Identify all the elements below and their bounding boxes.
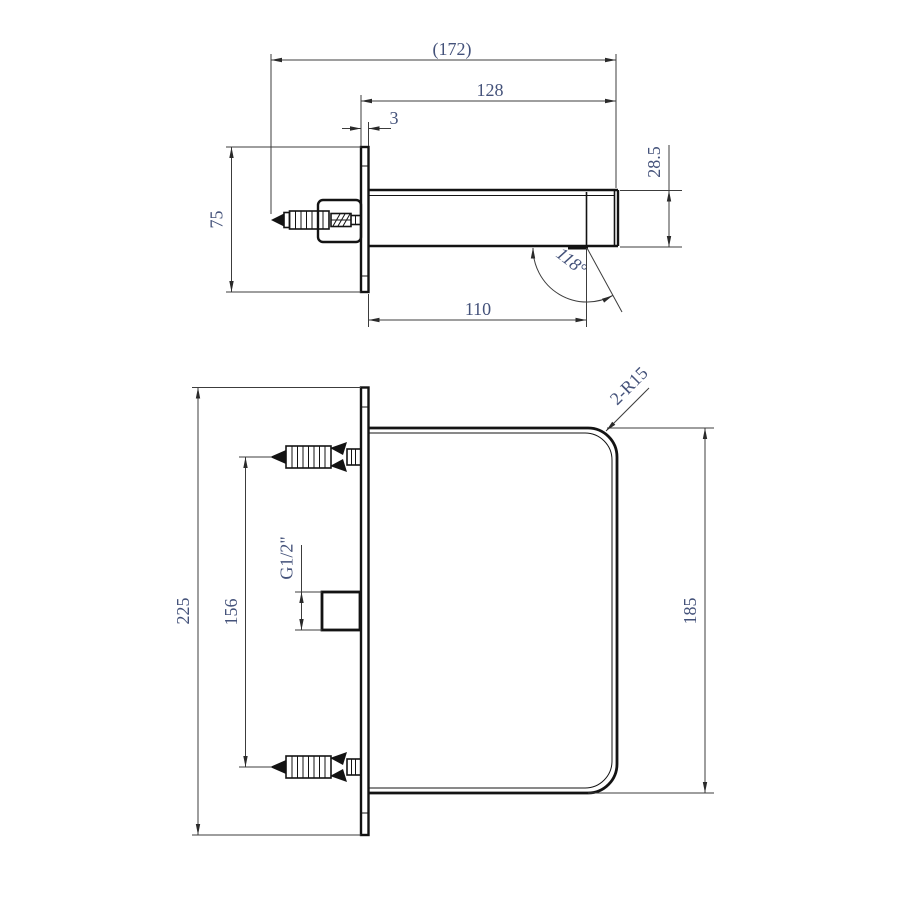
dim-anchor-spacing-label: 156	[221, 599, 241, 626]
spout-body-plan	[369, 428, 618, 793]
wall-anchor-bottom	[270, 752, 361, 782]
dim-overall-depth-label: (172)	[433, 39, 472, 60]
outlet-angle-annotation: 118°	[531, 243, 622, 312]
spout-body-side	[369, 190, 619, 248]
dim-corner-radius-label: 2-R15	[606, 363, 652, 409]
dim-plate-height-label: 75	[207, 211, 227, 229]
technical-drawing: 118° (172) 128 3	[0, 0, 900, 900]
inlet-block	[322, 592, 360, 630]
dim-plate-thickness-label: 3	[390, 108, 399, 128]
dim-plate-width: 225	[173, 388, 361, 836]
dim-spout-projection: 128	[361, 80, 616, 146]
side-view: 118° (172) 128 3	[207, 39, 683, 327]
dim-outlet-distance-label: 110	[465, 299, 491, 319]
corner-radius-leader: 2-R15	[606, 363, 652, 431]
dim-spout-projection-label: 128	[477, 80, 504, 100]
dim-anchor-spacing: 156	[221, 457, 272, 767]
dim-spout-end-height: 28.5	[620, 145, 682, 247]
wall-screw-side	[271, 211, 361, 229]
drawing-canvas: 118° (172) 128 3	[0, 0, 900, 900]
dim-spout-height-label: 28.5	[644, 146, 664, 178]
dim-body-width: 185	[588, 428, 714, 793]
mounting-block	[318, 200, 361, 242]
dim-inlet-thread: G1/2"	[277, 536, 323, 630]
wall-plate-plan	[361, 388, 369, 836]
plan-view: 225 156 G1/2" 185	[173, 363, 714, 835]
dim-plate-width-label: 225	[173, 598, 193, 625]
dim-inlet-thread-label: G1/2"	[277, 536, 297, 579]
dim-overall-depth: (172)	[271, 39, 616, 214]
dim-body-width-label: 185	[680, 598, 700, 625]
wall-anchor-top	[270, 442, 361, 472]
dim-plate-thickness: 3	[342, 108, 399, 146]
